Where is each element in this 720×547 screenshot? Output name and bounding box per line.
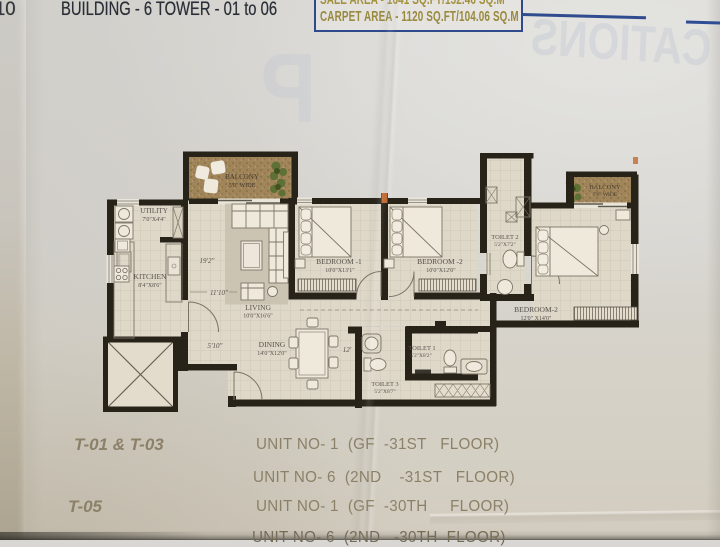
svg-text:5'2"X8'2": 5'2"X8'2"	[410, 353, 431, 359]
svg-text:11'10": 11'10"	[210, 289, 228, 297]
svg-text:10'0"X13'1": 10'0"X13'1"	[325, 268, 355, 274]
svg-text:UTILITY: UTILITY	[140, 207, 168, 215]
svg-text:8'4"X8'6": 8'4"X8'6"	[138, 283, 162, 289]
svg-text:7'0"X4'4": 7'0"X4'4"	[142, 217, 166, 223]
svg-text:BEDROOM -2: BEDROOM -2	[417, 257, 463, 266]
svg-text:BEDROOM-2: BEDROOM-2	[514, 305, 558, 314]
svg-text:BALCONY: BALCONY	[589, 184, 621, 191]
svg-text:7'0" WIDE: 7'0" WIDE	[593, 192, 618, 198]
svg-text:5'2"X8'7": 5'2"X8'7"	[374, 389, 395, 395]
svg-text:5'10": 5'10"	[208, 342, 223, 350]
svg-text:BEDROOM -1: BEDROOM -1	[316, 257, 362, 266]
svg-text:BALCONY: BALCONY	[225, 173, 259, 181]
svg-text:19'2": 19'2"	[200, 257, 215, 265]
svg-text:10'0"X16'6": 10'0"X16'6"	[243, 314, 273, 320]
svg-text:KITCHEN: KITCHEN	[134, 272, 167, 281]
svg-text:5'2"X7'2": 5'2"X7'2"	[494, 242, 515, 248]
svg-text:12'0" X14'0": 12'0" X14'0"	[521, 316, 552, 322]
svg-text:LIVING: LIVING	[245, 303, 271, 312]
svg-text:TOILET 1: TOILET 1	[408, 345, 435, 352]
svg-text:10'0"X12'0": 10'0"X12'0"	[426, 268, 456, 274]
svg-text:14'0"X12'0": 14'0"X12'0"	[257, 351, 287, 357]
svg-text:12': 12'	[343, 346, 352, 354]
svg-text:DINING: DINING	[259, 340, 286, 349]
svg-text:5'0" WIDE: 5'0" WIDE	[229, 183, 256, 189]
svg-text:TOILET 2: TOILET 2	[491, 234, 518, 241]
